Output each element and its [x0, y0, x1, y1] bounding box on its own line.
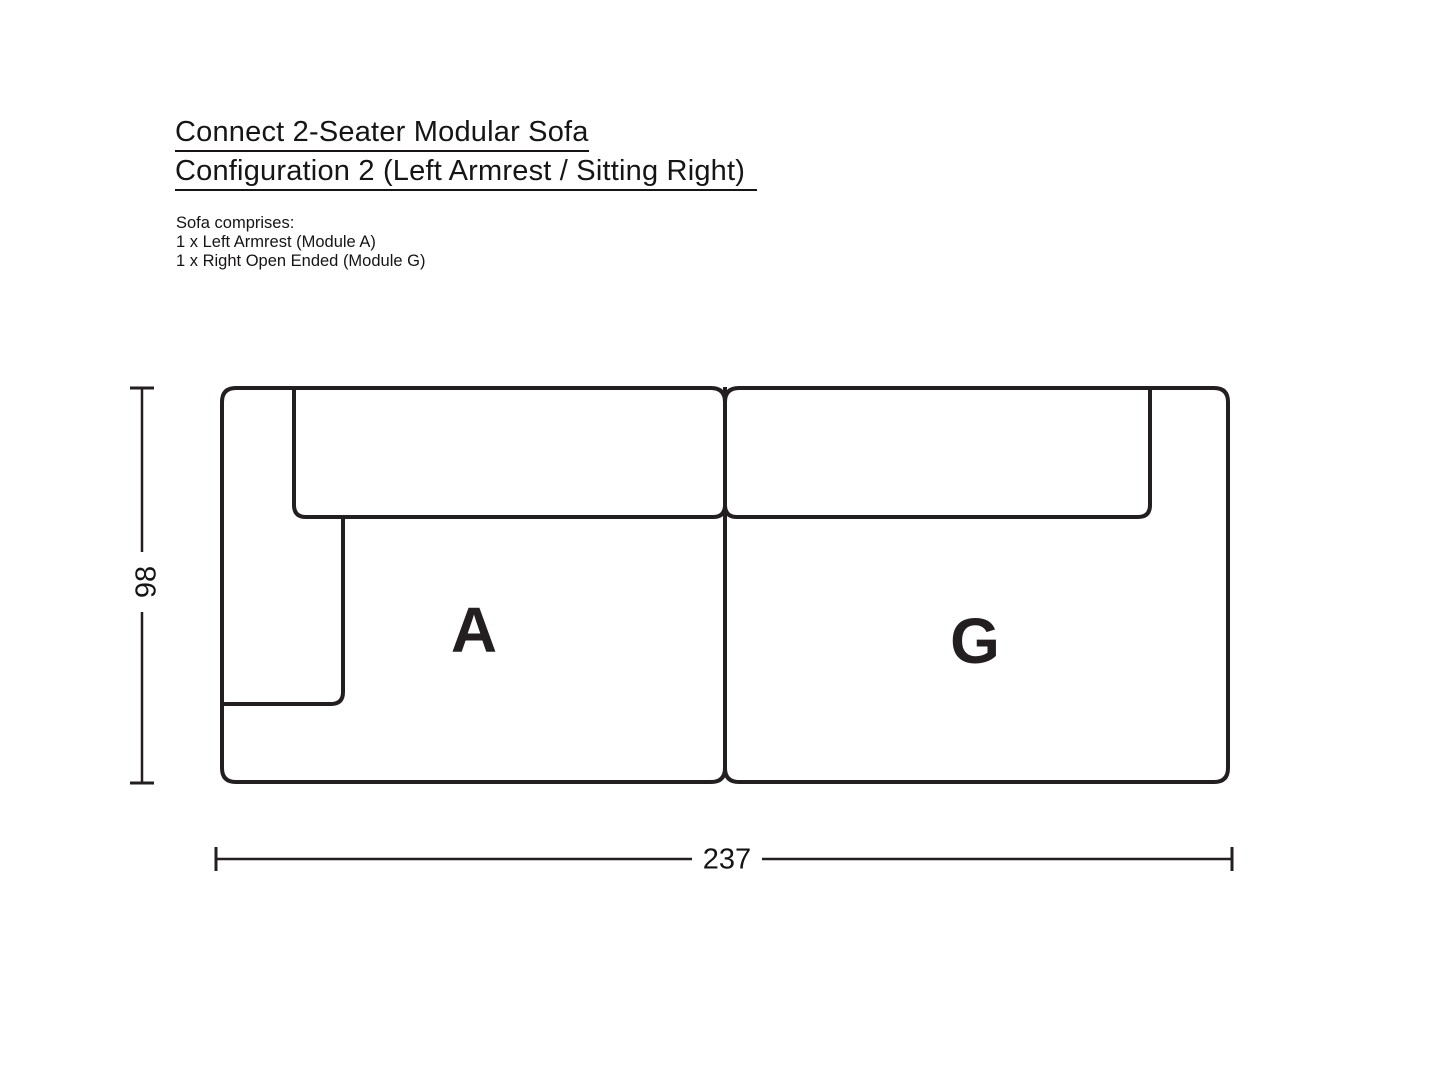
width-dimension-value: 237	[703, 846, 751, 875]
module-g-backrest-line	[725, 387, 1150, 517]
module-a-backrest-line	[294, 387, 725, 517]
module-g-label: G	[950, 609, 1000, 673]
module-a-label: A	[451, 598, 497, 662]
sofa-top-view-diagram	[0, 0, 1445, 1087]
height-dimension-value: 98	[133, 566, 162, 598]
module-a-outline	[222, 388, 725, 782]
module-g-outline	[725, 388, 1228, 782]
sofa-configuration-sheet: Connect 2-Seater Modular Sofa Configurat…	[0, 0, 1445, 1087]
module-a-armrest-line	[224, 517, 343, 704]
